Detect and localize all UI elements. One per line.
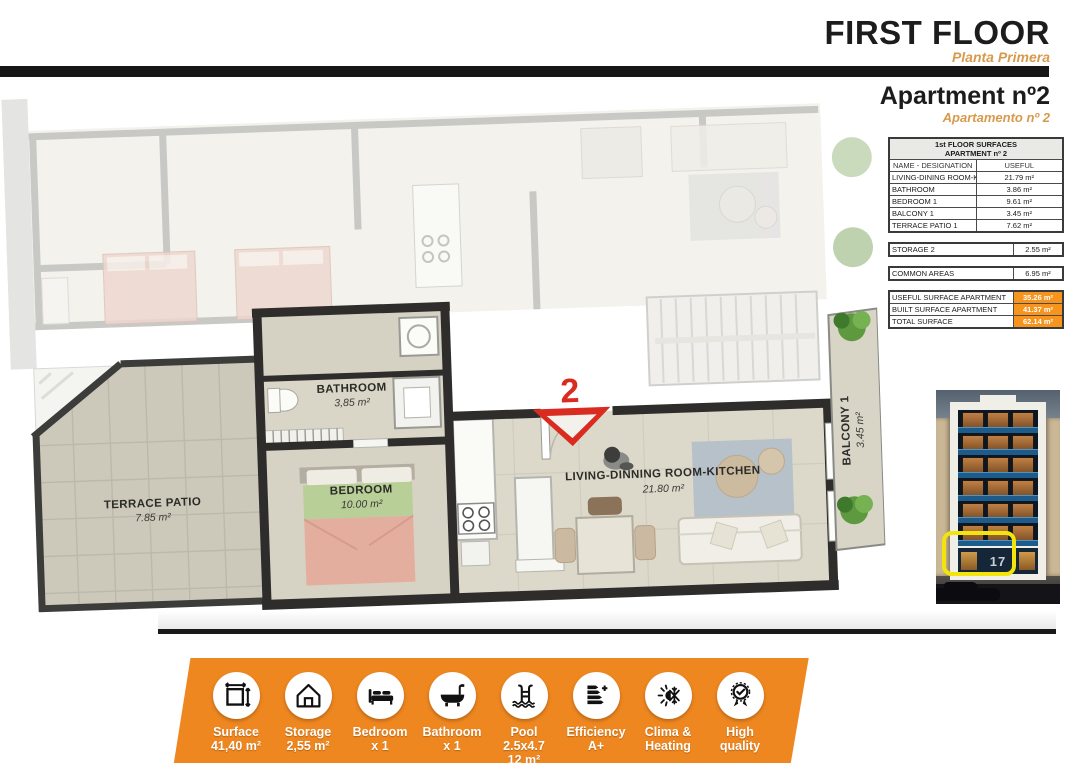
floor-plan: TERRACE PATIO 7.85 m²	[1, 62, 887, 626]
row-name: USEFUL SURFACE APARTMENT	[889, 291, 1014, 304]
storage-icon	[285, 672, 332, 719]
table-row: USEFUL SURFACE APARTMENT 35.26 m²	[889, 291, 1063, 304]
bedroom-area: 10.00 m²	[341, 498, 383, 511]
col-name-header: NAME - DESIGNATION	[889, 160, 976, 172]
feature-label: Bedroom	[353, 725, 408, 739]
feature-label: Pool 2.5x4.7	[488, 725, 560, 753]
features-footer: Surface 41,40 m² Storage 2,55 m²	[170, 658, 810, 763]
row-value: 7.62 m²	[976, 220, 1063, 233]
table-row: BUILT SURFACE APARTMENT 41.37 m²	[889, 304, 1063, 316]
building-floor	[958, 433, 1038, 456]
row-name: COMMON AREAS	[889, 267, 1014, 280]
shop-window	[1019, 552, 1035, 570]
surfaces-panel: 1st FLOOR SURFACES APARTMENT nº 2 NAME -…	[888, 137, 1064, 338]
balcony: BALCONY 1 3.45 m²	[828, 308, 885, 550]
row-name: TERRACE PATIO 1	[889, 220, 976, 233]
building-floor	[958, 478, 1038, 501]
col-useful-header: USEFUL	[976, 160, 1063, 172]
bedroom-icon	[357, 672, 404, 719]
row-value-highlighted: 35.26 m²	[1014, 291, 1064, 304]
feature-label: Surface	[211, 725, 261, 739]
footer-gradient-strip	[158, 611, 1056, 629]
feature-storage: Storage 2,55 m²	[272, 672, 344, 753]
clima-heating-icon	[645, 672, 692, 719]
page-title: FIRST FLOOR	[825, 16, 1050, 49]
row-value: 6.95 m²	[1014, 267, 1064, 280]
table-row: TOTAL SURFACE 62.14 m²	[889, 316, 1063, 329]
surfaces-table: 1st FLOOR SURFACES APARTMENT nº 2 NAME -…	[888, 137, 1064, 233]
row-name: TOTAL SURFACE	[889, 316, 1014, 329]
building-elevation-photo: 17	[936, 390, 1060, 604]
apartment-subtitle: Apartamento nº 2	[880, 110, 1050, 125]
building-floor	[958, 455, 1038, 478]
surfaces-table-header-line2: APARTMENT nº 2	[892, 149, 1060, 158]
bathroom-icon	[429, 672, 476, 719]
row-name: BALCONY 1	[889, 208, 976, 220]
terrace-patio: TERRACE PATIO 7.85 m²	[31, 359, 270, 612]
feature-label: High	[720, 725, 760, 739]
footer-divider-bar	[158, 629, 1056, 634]
feature-value: 41,40 m²	[211, 739, 261, 753]
row-value-highlighted: 41.37 m²	[1014, 304, 1064, 316]
feature-value: x 1	[422, 739, 481, 753]
feature-value: A+	[566, 739, 625, 753]
building-floor	[958, 501, 1038, 524]
balcony-area: 3.45 m²	[854, 412, 867, 448]
building-floor	[958, 410, 1038, 433]
terrace-area: 7.85 m²	[135, 511, 171, 524]
bathroom-label: BATHROOM	[316, 382, 386, 396]
living-area: 21.80 m²	[641, 482, 684, 495]
entrance-number: 2	[560, 372, 580, 411]
feature-pool: Pool 2.5x4.7 12 m²	[488, 672, 560, 763]
feature-value: quality	[720, 739, 760, 753]
street	[936, 584, 1060, 604]
feature-quality: High quality	[704, 672, 776, 753]
row-name: BATHROOM	[889, 184, 976, 196]
table-row: BEDROOM 1 9.61 m²	[889, 196, 1063, 208]
bedroom-label: BEDROOM	[330, 483, 393, 497]
feature-label: Storage	[285, 725, 332, 739]
feature-clima: Clima & Heating	[632, 672, 704, 753]
apartment-title-block: Apartment nº2 Apartamento nº 2	[880, 84, 1050, 125]
efficiency-icon	[573, 672, 620, 719]
surfaces-table-header-line1: 1st FLOOR SURFACES	[892, 140, 1060, 149]
row-value: 21.79 m²	[976, 172, 1063, 184]
surfaces-table-header: 1st FLOOR SURFACES APARTMENT nº 2	[889, 138, 1063, 160]
totals-table: USEFUL SURFACE APARTMENT 35.26 m² BUILT …	[888, 290, 1064, 329]
high-quality-icon	[717, 672, 764, 719]
neighbour-building	[1045, 418, 1060, 576]
feature-bathroom: Bathroom x 1	[416, 672, 488, 753]
balcony-label: BALCONY 1	[839, 395, 853, 465]
feature-value: 12 m²	[488, 753, 560, 763]
row-name: LIVING-DINING ROOM-KITCHEN	[889, 172, 976, 184]
feature-efficiency: Efficiency A+	[560, 672, 632, 753]
row-name: BEDROOM 1	[889, 196, 976, 208]
feature-label: Efficiency	[566, 725, 625, 739]
table-row: TERRACE PATIO 1 7.62 m²	[889, 220, 1063, 233]
page-title-block: FIRST FLOOR Planta Primera	[825, 16, 1050, 65]
table-row: COMMON AREAS 6.95 m²	[889, 267, 1063, 280]
floor-plan-drawing: TERRACE PATIO 7.85 m²	[1, 62, 887, 626]
feature-bedroom: Bedroom x 1	[344, 672, 416, 753]
row-value: 3.45 m²	[976, 208, 1063, 220]
feature-value: x 1	[353, 739, 408, 753]
brochure-page: FIRST FLOOR Planta Primera Apartment nº2…	[0, 0, 1080, 763]
table-row: LIVING-DINING ROOM-KITCHEN 21.79 m²	[889, 172, 1063, 184]
row-name: BUILT SURFACE APARTMENT	[889, 304, 1014, 316]
surface-icon	[213, 672, 260, 719]
bathroom-area: 3,85 m²	[334, 396, 370, 409]
table-row: STORAGE 2 2.55 m²	[889, 243, 1063, 256]
roof-notch	[980, 395, 1016, 403]
feature-value: 2,55 m²	[285, 739, 332, 753]
row-value: 9.61 m²	[976, 196, 1063, 208]
common-areas-table: COMMON AREAS 6.95 m²	[888, 266, 1064, 281]
building-floors	[958, 410, 1038, 546]
feature-label: Clima &	[645, 725, 692, 739]
row-value-highlighted: 62.14 m²	[1014, 316, 1064, 329]
apartment-title: Apartment nº2	[880, 84, 1050, 109]
feature-surface: Surface 41,40 m²	[200, 672, 272, 753]
row-value: 2.55 m²	[1014, 243, 1064, 256]
car-silhouette	[936, 588, 1000, 601]
table-row: BATHROOM 3.86 m²	[889, 184, 1063, 196]
apartment-highlight-box	[942, 531, 1016, 576]
row-value: 3.86 m²	[976, 184, 1063, 196]
row-name: STORAGE 2	[889, 243, 1014, 256]
pool-icon	[501, 672, 548, 719]
table-row: BALCONY 1 3.45 m²	[889, 208, 1063, 220]
storage-table: STORAGE 2 2.55 m²	[888, 242, 1064, 257]
feature-value: Heating	[645, 739, 692, 753]
feature-label: Bathroom	[422, 725, 481, 739]
